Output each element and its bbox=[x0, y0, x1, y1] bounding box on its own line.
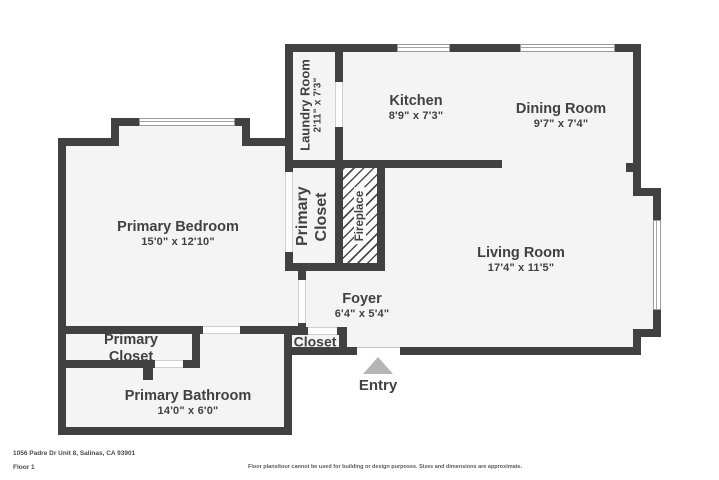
disclaimer-text: Floor plans/tour cannot be used for buil… bbox=[248, 464, 522, 470]
room-name: Primary Closet bbox=[294, 186, 330, 246]
wall-segment bbox=[143, 368, 153, 380]
room-label-dining: Dining Room 9'7" x 7'4" bbox=[516, 101, 606, 131]
room-name: Entry bbox=[359, 377, 397, 394]
room-name: Primary Bedroom bbox=[117, 219, 239, 236]
wall-segment bbox=[58, 138, 66, 435]
wall-segment bbox=[58, 138, 119, 146]
wall-segment bbox=[58, 427, 292, 435]
room-dims: 9'7" x 7'4" bbox=[516, 118, 606, 131]
room-name: Dining Room bbox=[516, 101, 606, 118]
door-opening bbox=[335, 82, 343, 127]
wall-segment bbox=[633, 44, 641, 196]
room-name: Foyer bbox=[335, 291, 390, 308]
room-dims: 6'4" x 5'4" bbox=[335, 308, 390, 321]
wall-segment bbox=[284, 331, 292, 435]
room-dims: 17'4" x 11'5" bbox=[477, 262, 565, 275]
wall-segment bbox=[285, 160, 502, 168]
room-dims: 15'0" x 12'10" bbox=[117, 236, 239, 249]
window bbox=[139, 118, 235, 126]
wall-segment bbox=[335, 44, 343, 271]
room-label-laundry: Laundry Room 2'11" x 7'3" bbox=[297, 59, 324, 151]
room-name: Primary Bathroom bbox=[125, 388, 252, 405]
room-label-fireplace: Fireplace bbox=[354, 188, 366, 245]
room-name: Laundry Room bbox=[297, 59, 312, 151]
window bbox=[520, 44, 615, 52]
room-label-kitchen: Kitchen 8'9" x 7'3" bbox=[389, 93, 444, 123]
wall-segment bbox=[377, 160, 385, 271]
room-dims: 2'11" x 7'3" bbox=[313, 59, 325, 151]
room-name: Living Room bbox=[477, 245, 565, 262]
wall-segment bbox=[626, 163, 633, 172]
wall-segment bbox=[285, 44, 293, 172]
address-text: 1056 Padre Dr Unit 8, Salinas, CA 93901 bbox=[13, 450, 135, 457]
room-dims: 8'9" x 7'3" bbox=[389, 110, 444, 123]
entry-opening bbox=[357, 347, 400, 355]
entry-arrow-icon bbox=[363, 357, 393, 374]
door-opening bbox=[203, 326, 240, 334]
wall-segment bbox=[400, 347, 641, 355]
room-label-living: Living Room 17'4" x 11'5" bbox=[477, 245, 565, 275]
room-dims: 14'0" x 6'0" bbox=[125, 405, 252, 418]
room-label-foyer: Foyer 6'4" x 5'4" bbox=[335, 291, 390, 321]
room-label-primary-bathroom: Primary Bathroom 14'0" x 6'0" bbox=[125, 388, 252, 418]
door-opening bbox=[298, 280, 306, 323]
floor-label: Floor 1 bbox=[13, 464, 35, 471]
floorplan-canvas: Laundry Room 2'11" x 7'3" Kitchen 8'9" x… bbox=[0, 0, 719, 480]
wall-segment bbox=[339, 327, 347, 355]
room-name: Kitchen bbox=[389, 93, 444, 110]
room-label-entry: Entry bbox=[359, 377, 397, 395]
room-name: Closet bbox=[294, 334, 337, 350]
room-label-primary-closet-mid: Primary Closet bbox=[294, 188, 332, 246]
room-label-primary-bedroom: Primary Bedroom 15'0" x 12'10" bbox=[117, 219, 239, 249]
room-label-entry-closet: Closet bbox=[294, 334, 337, 351]
room-label-primary-closet-sw: Primary Closet bbox=[86, 332, 176, 366]
closet-sliding-door bbox=[285, 172, 293, 252]
window bbox=[653, 220, 661, 310]
room-name: Primary Closet bbox=[104, 332, 158, 365]
room-name: Fireplace bbox=[354, 191, 366, 242]
window bbox=[397, 44, 450, 52]
